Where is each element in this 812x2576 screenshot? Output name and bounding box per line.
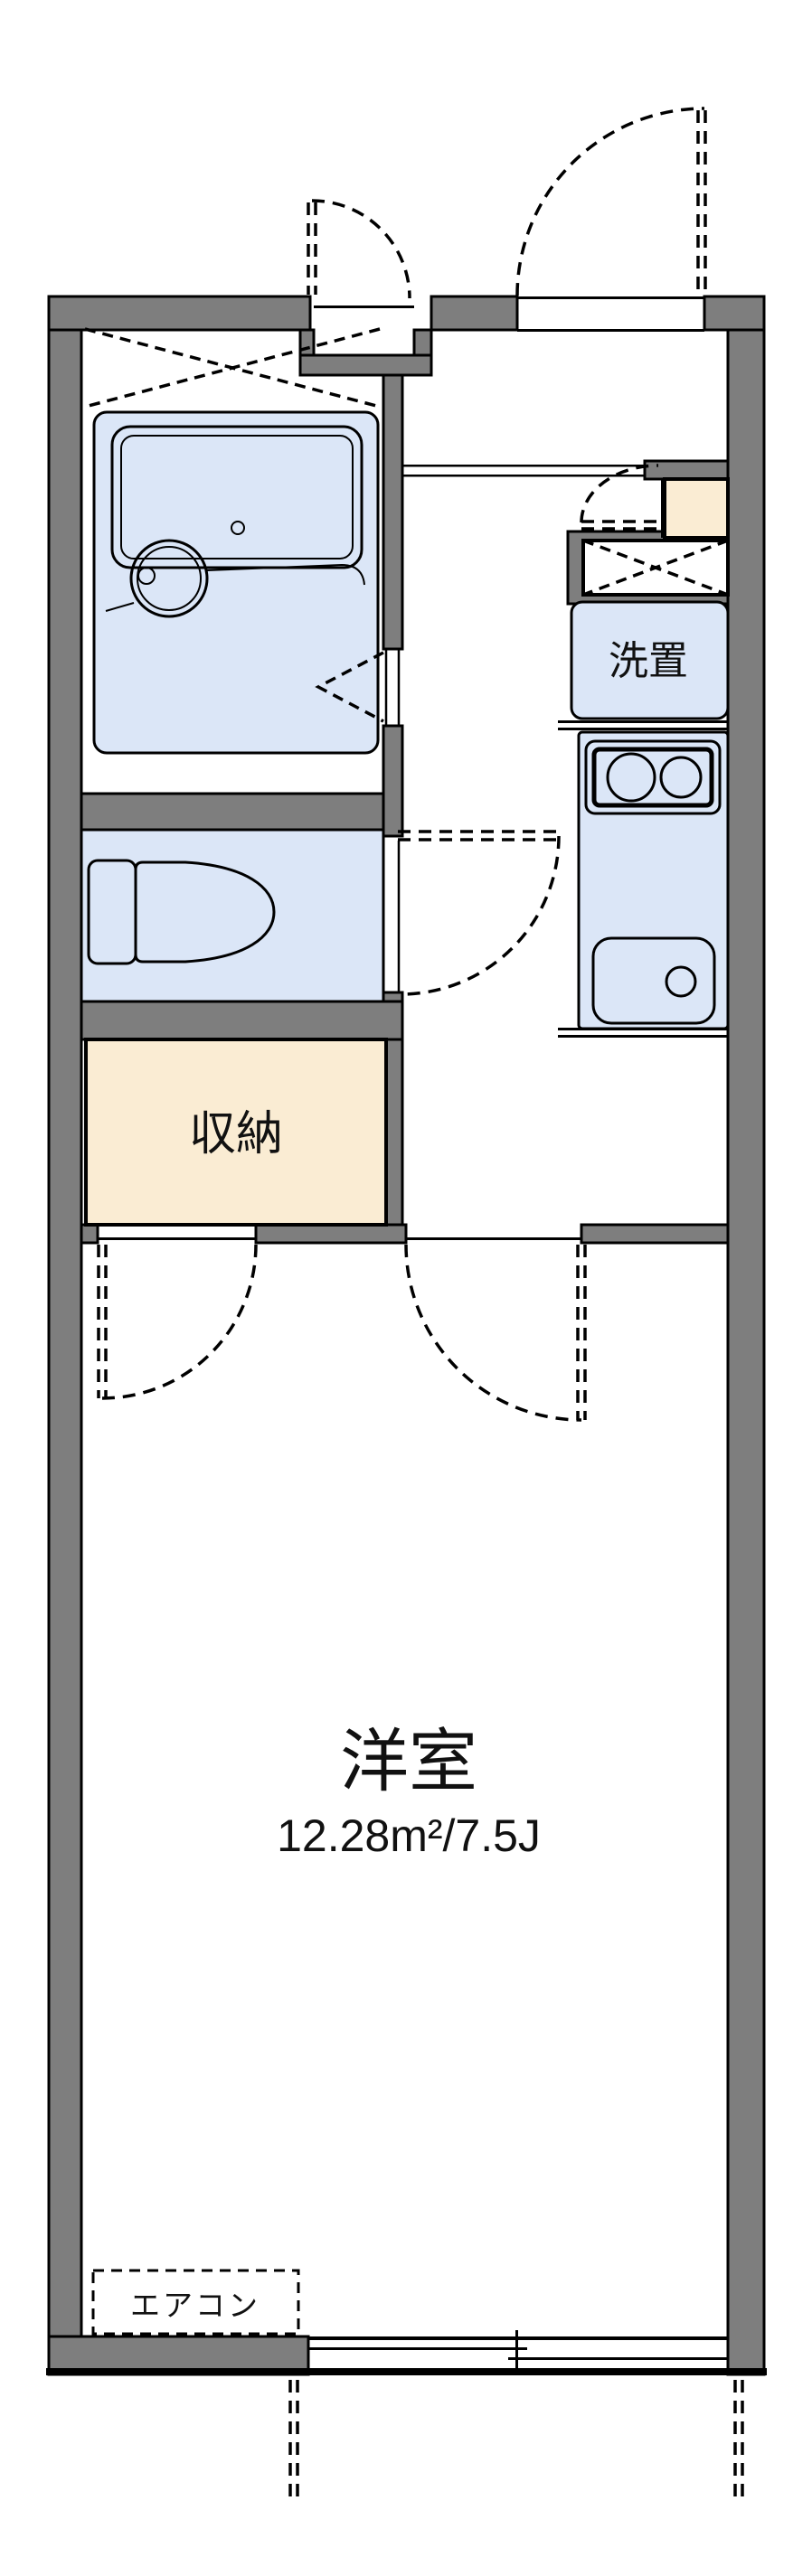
- floor-plan-page: 収納 洗置: [0, 0, 812, 2576]
- main-room-size: 12.28m²/7.5J: [277, 1810, 541, 1861]
- storage-label: 収納: [189, 1108, 283, 1161]
- storage-closet: 収納: [86, 1039, 386, 1225]
- washer-label: 洗置: [609, 639, 688, 683]
- aircon-label: エアコン: [130, 2289, 260, 2322]
- entrance-opening: [517, 296, 704, 332]
- toilet-door-swing: [398, 832, 559, 994]
- closet-door-swings: [99, 1245, 585, 1420]
- balcony-boundary-lines: [290, 2380, 742, 2504]
- shoe-box: [661, 479, 728, 538]
- bathroom: [85, 329, 399, 753]
- floor-plan: 収納 洗置: [0, 0, 812, 2576]
- washer-space: 洗置: [571, 602, 728, 719]
- service-niche: [314, 306, 414, 308]
- entrance-step-line: [402, 465, 645, 477]
- niche-door-swing: [308, 201, 410, 298]
- main-room: 洋室 12.28m²/7.5J エアコン: [93, 1724, 541, 2334]
- main-room-label: 洋室: [340, 1724, 477, 1800]
- meter-box: [583, 541, 728, 595]
- aircon-box: エアコン: [93, 2270, 298, 2334]
- bath-tray: [94, 412, 378, 753]
- entrance-door-swing: [517, 108, 705, 296]
- kitchen-counter: [558, 720, 728, 1038]
- toilet-room: [81, 830, 383, 1001]
